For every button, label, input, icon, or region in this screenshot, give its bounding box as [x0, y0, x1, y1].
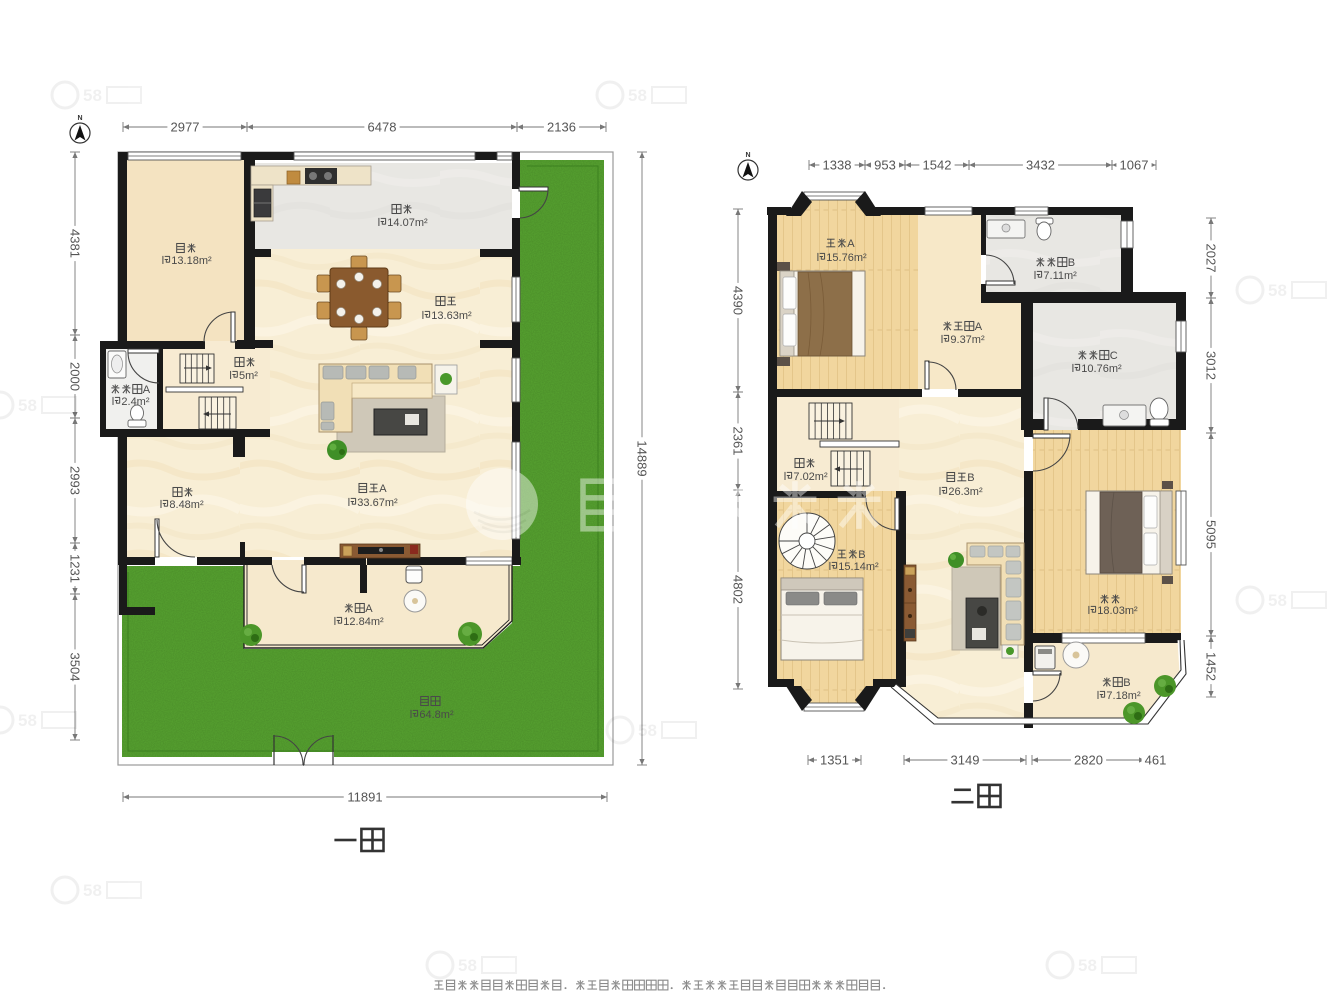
svg-text:B: B	[1068, 257, 1075, 269]
svg-text:1067: 1067	[1120, 158, 1149, 173]
svg-text:58: 58	[1268, 281, 1287, 300]
svg-text:A: A	[365, 603, 373, 615]
svg-text:B: B	[967, 472, 974, 484]
svg-text:58: 58	[83, 86, 102, 105]
svg-text:1338: 1338	[823, 158, 852, 173]
svg-text:2993: 2993	[68, 466, 83, 495]
svg-text:10.76m²: 10.76m²	[1081, 363, 1122, 375]
svg-text:7.18m²: 7.18m²	[1106, 690, 1141, 702]
svg-text:5095: 5095	[1204, 520, 1219, 549]
svg-text:26.3m²: 26.3m²	[948, 486, 983, 498]
svg-text:11891: 11891	[347, 790, 382, 805]
svg-text:461: 461	[1145, 753, 1167, 768]
svg-text:13.18m²: 13.18m²	[171, 255, 212, 267]
svg-text:58: 58	[18, 711, 37, 730]
svg-text:2000: 2000	[68, 362, 83, 391]
svg-text:58: 58	[1268, 591, 1287, 610]
svg-text:4390: 4390	[731, 286, 746, 315]
svg-text:58: 58	[628, 86, 647, 105]
svg-text:3432: 3432	[1026, 158, 1055, 173]
svg-text:2820: 2820	[1074, 753, 1103, 768]
svg-text:N: N	[745, 152, 750, 159]
svg-text:C: C	[1110, 350, 1118, 362]
svg-text:4381: 4381	[68, 229, 83, 258]
svg-text:13.63m²: 13.63m²	[431, 310, 472, 322]
svg-text:4802: 4802	[731, 575, 746, 604]
svg-text:12.84m²: 12.84m²	[343, 616, 384, 628]
svg-text:33.67m²: 33.67m²	[357, 497, 398, 509]
svg-text:1542: 1542	[923, 158, 952, 173]
svg-text:58: 58	[83, 881, 102, 900]
svg-text:15.14m²: 15.14m²	[838, 561, 879, 573]
svg-text:953: 953	[874, 158, 896, 173]
svg-text:8.48m²: 8.48m²	[169, 499, 204, 511]
svg-text:7.02m²: 7.02m²	[793, 471, 828, 483]
svg-text:14.07m²: 14.07m²	[387, 217, 428, 229]
svg-text:15.76m²: 15.76m²	[826, 252, 867, 264]
svg-text:64.8m²: 64.8m²	[419, 709, 454, 721]
svg-text:58: 58	[1078, 956, 1097, 975]
svg-text:1231: 1231	[68, 554, 83, 583]
svg-text:2027: 2027	[1204, 244, 1219, 273]
svg-text:A: A	[379, 483, 387, 495]
svg-text:7.11m²: 7.11m²	[1043, 270, 1077, 282]
svg-text:A: A	[847, 238, 855, 250]
svg-text:14889: 14889	[635, 440, 650, 476]
svg-text:2977: 2977	[171, 120, 200, 135]
svg-text:6478: 6478	[368, 120, 397, 135]
svg-text:3149: 3149	[951, 753, 980, 768]
svg-text:5m²: 5m²	[239, 370, 258, 382]
svg-text:58: 58	[458, 956, 477, 975]
svg-text:58: 58	[18, 396, 37, 415]
svg-text:18.03m²: 18.03m²	[1097, 605, 1138, 617]
svg-text:1452: 1452	[1204, 652, 1219, 681]
svg-text:A: A	[975, 321, 983, 333]
svg-text:A: A	[143, 384, 151, 396]
svg-text:58: 58	[638, 721, 657, 740]
svg-text:1351: 1351	[820, 753, 849, 768]
svg-text:B: B	[858, 549, 865, 561]
svg-text:2136: 2136	[547, 120, 576, 135]
svg-text:2361: 2361	[731, 427, 746, 456]
svg-text:B: B	[1123, 677, 1130, 689]
svg-text:3504: 3504	[68, 653, 83, 682]
svg-text:N: N	[77, 115, 82, 122]
svg-text:9.37m²: 9.37m²	[950, 334, 985, 346]
svg-text:3012: 3012	[1204, 351, 1219, 380]
svg-text:2.4m²: 2.4m²	[121, 396, 149, 408]
